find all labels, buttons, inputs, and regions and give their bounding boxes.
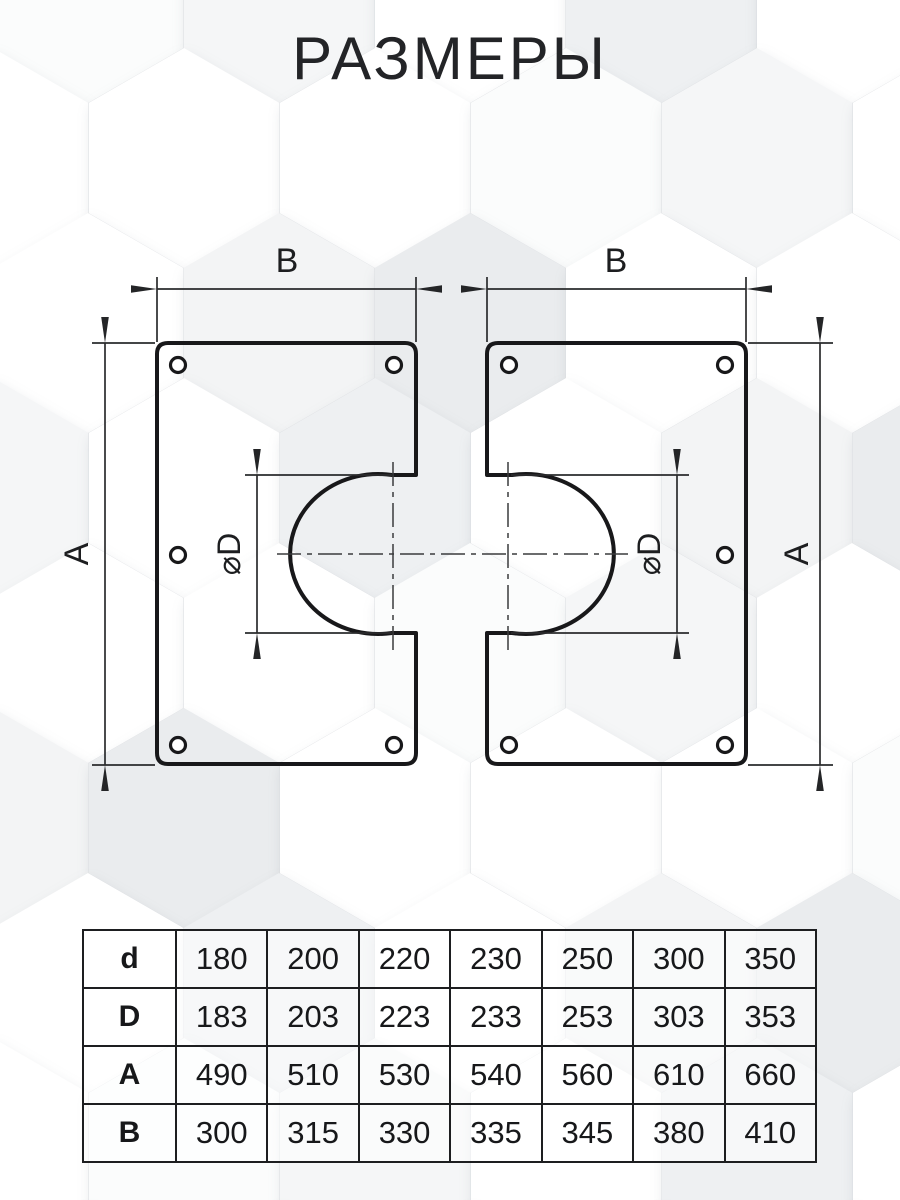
- row-header-cell: d: [83, 930, 176, 988]
- value-cell: 180: [176, 930, 267, 988]
- height-label-right: A: [778, 542, 816, 565]
- mounting-hole: [718, 738, 733, 753]
- value-cell: 303: [633, 988, 724, 1046]
- value-cell: 410: [725, 1104, 816, 1162]
- mounting-hole: [171, 738, 186, 753]
- width-label-left: B: [276, 242, 299, 280]
- mounting-hole: [387, 358, 402, 373]
- dimension-a-right: A: [748, 343, 833, 765]
- product-image: РАЗМЕРЫ: [0, 0, 900, 1200]
- table-row: A490510530540560610660: [83, 1046, 816, 1104]
- value-cell: 610: [633, 1046, 724, 1104]
- value-cell: 183: [176, 988, 267, 1046]
- value-cell: 253: [542, 988, 633, 1046]
- mounting-hole: [718, 548, 733, 563]
- value-cell: 490: [176, 1046, 267, 1104]
- technical-drawing: B B A A ⌀D: [0, 0, 900, 910]
- value-cell: 223: [359, 988, 450, 1046]
- value-cell: 353: [725, 988, 816, 1046]
- mounting-hole: [502, 358, 517, 373]
- value-cell: 530: [359, 1046, 450, 1104]
- diameter-label-right: ⌀D: [631, 533, 667, 575]
- value-cell: 350: [725, 930, 816, 988]
- value-cell: 660: [725, 1046, 816, 1104]
- row-header-cell: D: [83, 988, 176, 1046]
- value-cell: 230: [450, 930, 541, 988]
- row-header-cell: B: [83, 1104, 176, 1162]
- mounting-hole: [502, 738, 517, 753]
- mounting-hole: [718, 358, 733, 373]
- mounting-hole: [171, 548, 186, 563]
- table-row: d180200220230250300350: [83, 930, 816, 988]
- value-cell: 220: [359, 930, 450, 988]
- height-label-left: A: [58, 542, 96, 565]
- value-cell: 330: [359, 1104, 450, 1162]
- hexagon-tile: [0, 1038, 89, 1200]
- width-label-right: B: [605, 242, 628, 280]
- value-cell: 300: [633, 930, 724, 988]
- hexagon-tile: [853, 1038, 900, 1200]
- diameter-label-left: ⌀D: [211, 533, 247, 575]
- table-row: B300315330335345380410: [83, 1104, 816, 1162]
- page-title: РАЗМЕРЫ: [0, 24, 900, 93]
- value-cell: 380: [633, 1104, 724, 1162]
- value-cell: 300: [176, 1104, 267, 1162]
- value-cell: 540: [450, 1046, 541, 1104]
- value-cell: 250: [542, 930, 633, 988]
- dimension-b-left: B: [157, 242, 416, 342]
- dimension-a-left: A: [58, 343, 155, 765]
- dimension-b-right: B: [487, 242, 746, 342]
- dimensions-table: d180200220230250300350D18320322323325330…: [82, 929, 817, 1163]
- value-cell: 510: [267, 1046, 358, 1104]
- value-cell: 233: [450, 988, 541, 1046]
- value-cell: 203: [267, 988, 358, 1046]
- value-cell: 315: [267, 1104, 358, 1162]
- value-cell: 345: [542, 1104, 633, 1162]
- table-row: D183203223233253303353: [83, 988, 816, 1046]
- value-cell: 200: [267, 930, 358, 988]
- value-cell: 560: [542, 1046, 633, 1104]
- mounting-hole: [387, 738, 402, 753]
- value-cell: 335: [450, 1104, 541, 1162]
- mounting-hole: [171, 358, 186, 373]
- row-header-cell: A: [83, 1046, 176, 1104]
